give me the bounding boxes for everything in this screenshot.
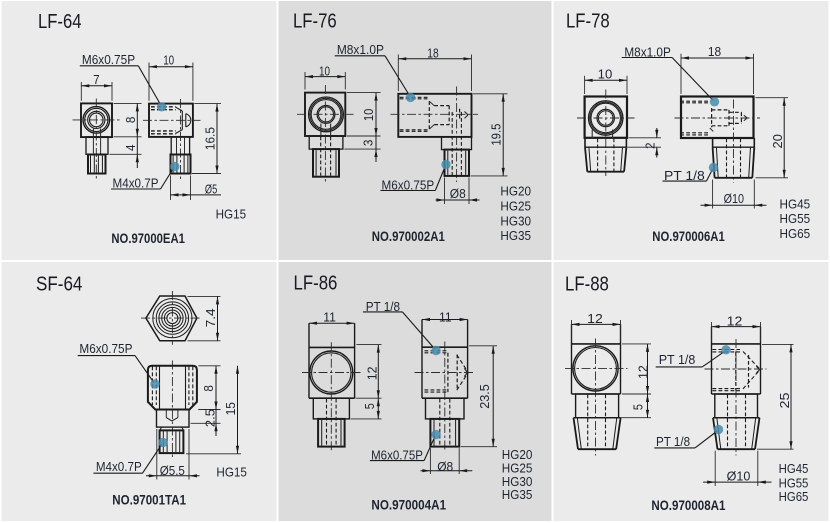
svg-text:NO.970004A1: NO.970004A1	[371, 498, 446, 513]
svg-text:HG55: HG55	[780, 211, 811, 226]
svg-text:LF-88: LF-88	[565, 273, 609, 295]
svg-text:M8x1.0P: M8x1.0P	[337, 42, 384, 57]
svg-text:2.5: 2.5	[202, 409, 217, 427]
svg-text:HG65: HG65	[779, 489, 809, 504]
svg-text:Ø8: Ø8	[450, 186, 466, 201]
svg-text:18: 18	[708, 44, 721, 59]
svg-text:HG20: HG20	[500, 183, 531, 198]
svg-text:Ø5: Ø5	[205, 182, 217, 197]
svg-text:M4x0.7P: M4x0.7P	[113, 175, 159, 190]
svg-text:10: 10	[361, 109, 376, 122]
svg-text:M6x0.75P: M6x0.75P	[82, 52, 135, 67]
svg-text:12: 12	[587, 311, 603, 326]
svg-text:M6x0.75P: M6x0.75P	[79, 341, 132, 356]
svg-text:12: 12	[636, 365, 651, 379]
svg-text:Ø10: Ø10	[724, 191, 744, 206]
svg-text:12: 12	[365, 367, 380, 381]
svg-text:NO.970002A1: NO.970002A1	[372, 229, 445, 244]
svg-text:5: 5	[362, 403, 377, 409]
svg-text:HG25: HG25	[500, 199, 531, 214]
svg-text:11: 11	[323, 310, 336, 325]
svg-text:5: 5	[630, 404, 645, 410]
svg-text:PT 1/8: PT 1/8	[659, 352, 696, 367]
svg-text:23.5: 23.5	[477, 384, 492, 409]
svg-text:NO.970008A1: NO.970008A1	[651, 498, 726, 513]
svg-text:HG45: HG45	[779, 461, 809, 476]
svg-text:HG65: HG65	[780, 226, 811, 241]
svg-text:SF-64: SF-64	[36, 273, 82, 295]
svg-text:12: 12	[727, 313, 743, 328]
svg-text:M4x0.7P: M4x0.7P	[96, 459, 142, 474]
svg-text:2: 2	[643, 142, 658, 149]
svg-text:LF-86: LF-86	[294, 273, 338, 295]
svg-text:HG30: HG30	[500, 213, 531, 228]
svg-text:11: 11	[439, 310, 452, 325]
svg-text:7: 7	[93, 72, 100, 87]
svg-text:HG35: HG35	[500, 228, 531, 243]
svg-text:3: 3	[360, 140, 375, 147]
svg-text:10: 10	[163, 53, 174, 68]
svg-text:20: 20	[770, 134, 785, 148]
svg-text:HG45: HG45	[780, 197, 811, 212]
svg-text:Ø5.5: Ø5.5	[160, 463, 185, 478]
svg-text:18: 18	[427, 45, 438, 60]
svg-text:19.5: 19.5	[489, 124, 504, 146]
svg-text:8: 8	[123, 117, 138, 124]
svg-text:LF-78: LF-78	[566, 11, 610, 33]
svg-text:HG55: HG55	[779, 475, 809, 490]
svg-text:Ø10: Ø10	[727, 468, 751, 483]
svg-text:HG15: HG15	[216, 464, 247, 479]
svg-text:8: 8	[201, 385, 216, 392]
svg-text:PT 1/8: PT 1/8	[656, 434, 690, 449]
svg-text:10: 10	[319, 63, 330, 78]
svg-text:7.4: 7.4	[203, 308, 218, 327]
svg-text:25: 25	[777, 393, 792, 409]
svg-text:4: 4	[123, 145, 138, 152]
svg-text:NO.97000EA1: NO.97000EA1	[111, 231, 185, 246]
svg-text:Ø8: Ø8	[437, 459, 453, 474]
svg-text:HG15: HG15	[216, 207, 247, 222]
svg-text:10: 10	[598, 66, 613, 81]
svg-text:HG35: HG35	[502, 487, 533, 502]
svg-text:16.5: 16.5	[202, 127, 217, 150]
svg-text:LF-64: LF-64	[38, 11, 82, 33]
svg-text:NO.97001TA1: NO.97001TA1	[112, 493, 186, 508]
svg-text:15: 15	[223, 402, 238, 415]
svg-text:LF-76: LF-76	[293, 11, 337, 33]
svg-text:NO.970006A1: NO.970006A1	[652, 229, 725, 244]
